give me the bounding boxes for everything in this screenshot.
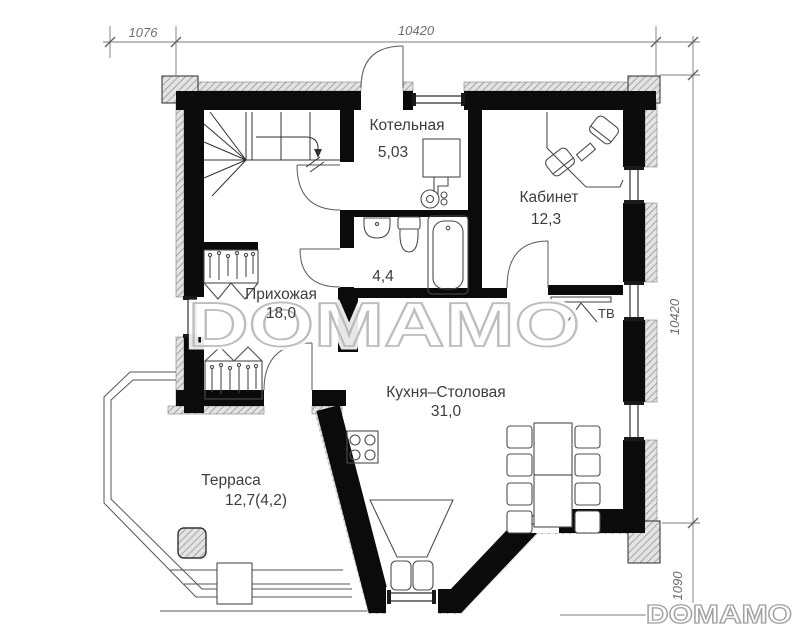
window-kitchen-right bbox=[624, 401, 644, 441]
dim-right-secondary: 1090 bbox=[670, 571, 685, 601]
label-terrace-name: Терраса bbox=[201, 472, 261, 489]
bath-sink bbox=[364, 218, 390, 238]
label-office-name: Кабинет bbox=[520, 189, 579, 206]
label-hallway-area: 18,0 bbox=[266, 305, 297, 322]
window-bay-bottom bbox=[386, 587, 438, 615]
label-boiler-area: 5,03 bbox=[378, 144, 408, 161]
floor-plan-page: 1076 10420 10420 1090 DOMAMO DOMAMO Коте… bbox=[0, 0, 800, 640]
label-hallway-name: Прихожая bbox=[245, 286, 317, 303]
stove bbox=[347, 431, 378, 463]
bathroom-door bbox=[300, 249, 340, 287]
dining-set bbox=[507, 423, 600, 533]
dim-right-main: 10420 bbox=[667, 298, 682, 335]
window-office-right bbox=[624, 166, 644, 204]
logo-outline: DOMAMO bbox=[646, 599, 792, 629]
window-boiler-top bbox=[412, 93, 465, 106]
label-office-area: 12,3 bbox=[531, 211, 561, 228]
label-terrace-area: 12,7(4,2) bbox=[225, 492, 287, 509]
bathtub bbox=[428, 216, 468, 294]
boiler-unit bbox=[421, 139, 460, 208]
toilet bbox=[398, 217, 420, 252]
boiler-door bbox=[297, 165, 340, 210]
label-boiler-name: Котельная bbox=[369, 117, 444, 134]
floor-plan-canvas: 1076 10420 10420 1090 DOMAMO DOMAMO Коте… bbox=[0, 0, 800, 640]
brand-logo-corner: DOMAMO DOMAMO bbox=[646, 599, 792, 629]
label-bathroom-area: 4,4 bbox=[372, 268, 394, 285]
dim-top-secondary: 1076 bbox=[129, 25, 159, 40]
label-kitchen-area: 31,0 bbox=[431, 403, 462, 420]
office-door bbox=[507, 241, 548, 288]
office-desk bbox=[544, 112, 623, 187]
entrance-door bbox=[361, 46, 403, 88]
window-right-middle bbox=[624, 281, 644, 321]
label-kitchen-name: Кухня–Столовая bbox=[386, 384, 505, 401]
staircase bbox=[204, 112, 340, 196]
dim-top-main: 10420 bbox=[398, 23, 435, 38]
stair-direction-arrow bbox=[314, 149, 322, 158]
terrace-column bbox=[178, 528, 206, 558]
label-tv: ТВ bbox=[598, 306, 615, 321]
terrace-steps bbox=[217, 563, 252, 604]
